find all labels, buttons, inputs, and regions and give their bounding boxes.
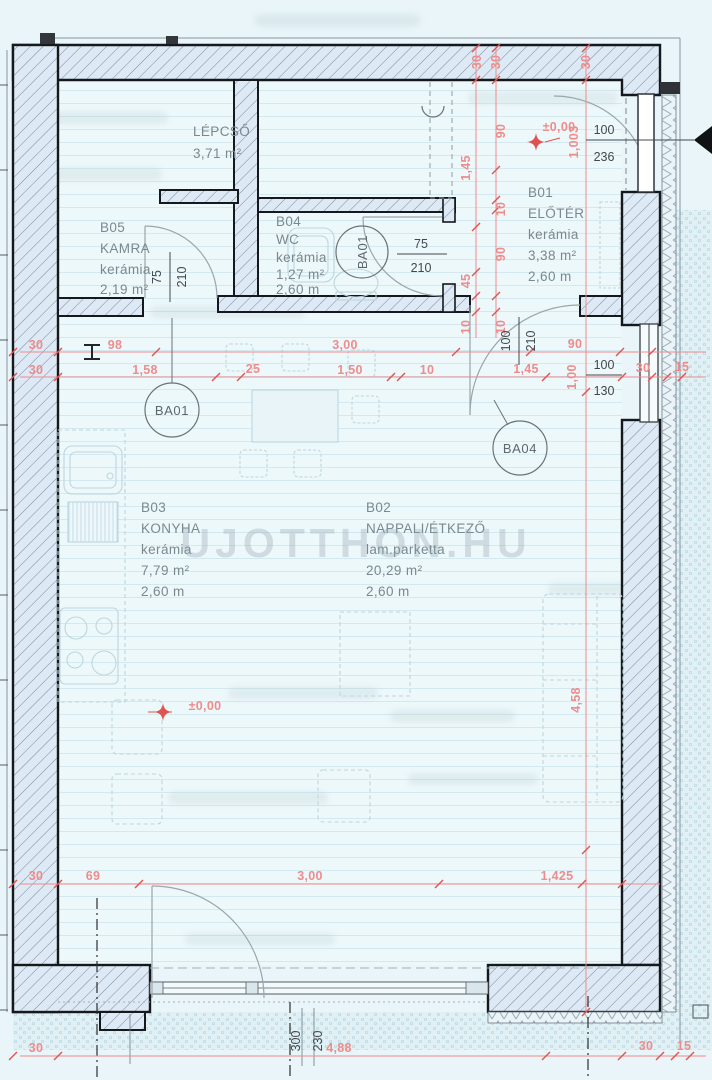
dim-label: 1,00 [565, 364, 579, 390]
terrace-door-mullion [246, 982, 258, 994]
wall-step-bottom-left [100, 1012, 145, 1030]
wall-wc-jamb-bottom [443, 284, 455, 312]
dim-label: 30 [579, 55, 593, 70]
tag-label: BA01 [155, 403, 189, 418]
room-name: ELŐTÉR [528, 206, 584, 221]
kamra-door-height: 210 [175, 267, 189, 288]
room-code: B03 [141, 500, 166, 515]
dim-label: 1,50 [337, 363, 363, 377]
room-code: B01 [528, 185, 553, 200]
dim-label: 15 [675, 360, 690, 374]
wall-wc-bottom [218, 296, 470, 312]
dim-label: 30 [29, 869, 44, 883]
dim-label: 30 [29, 338, 44, 352]
dim-label: 90 [568, 337, 583, 351]
wall-lepcso-kamra [160, 190, 238, 203]
room-code: B05 [100, 220, 125, 235]
window-height: 130 [594, 384, 615, 398]
dim-label: 90 [494, 124, 508, 139]
wall-left [13, 45, 58, 1012]
room-area: 3,38 m² [528, 248, 577, 263]
living-door-height: 210 [524, 331, 538, 352]
terrace-door-width: 300 [289, 1031, 303, 1052]
dim-label: 1,45 [459, 155, 473, 181]
wall-bottom-right [488, 965, 660, 1012]
wall-wc-top [258, 198, 455, 212]
dim-label: 3,00 [332, 338, 358, 352]
room-area: 3,71 m² [193, 146, 242, 161]
window-width: 100 [594, 358, 615, 372]
kamra-door-width: 75 [150, 270, 164, 284]
room-floor: kerámia [100, 262, 151, 277]
elevation-value: ±0,00 [189, 699, 222, 713]
block-top [166, 36, 178, 44]
dim-label: 30 [29, 363, 44, 377]
dim-label: 4,58 [569, 687, 583, 713]
terrace-door-height: 230 [311, 1031, 325, 1052]
dim-label: 10 [494, 202, 508, 217]
dim-label: 1,425 [541, 869, 574, 883]
entry-door-height: 236 [594, 150, 615, 164]
tag-label: BA04 [503, 441, 537, 456]
wall-right-lower [622, 420, 660, 965]
wc-door-width: 75 [414, 237, 428, 251]
room-height: 2,60 m [141, 584, 185, 599]
insulation-right [662, 95, 676, 1012]
floor-plan-page: 30 30 30 1,45 45 10 90 10 90 10 30 98 3,… [0, 0, 712, 1080]
floor-plan-drawing: 30 30 30 1,45 45 10 90 10 90 10 30 98 3,… [0, 0, 712, 1080]
room-height: 2,60 m [528, 269, 572, 284]
dim-label: 90 [494, 247, 508, 262]
wc-door-height: 210 [411, 261, 432, 275]
insulation-bottom [488, 1012, 662, 1023]
dim-label: 1,58 [132, 363, 158, 377]
sink-drainer [68, 502, 118, 542]
room-floor: kerámia [528, 227, 579, 242]
wall-kamra-bottom [58, 298, 143, 316]
dim-label: 25 [246, 362, 261, 376]
dim-label: 45 [459, 274, 473, 289]
dim-label: 4,88 [326, 1041, 352, 1055]
dim-label: 1,45 [513, 362, 539, 376]
wall-bottom-left [13, 965, 150, 1012]
tag-label: BA01 [355, 235, 370, 269]
dim-label: 30 [636, 361, 651, 375]
dim-label: 69 [86, 869, 101, 883]
terrace-door-mullion [466, 982, 488, 994]
entry-door-leaf [638, 94, 654, 192]
corner-block-top-right [660, 82, 680, 94]
watermark-text: UJOTTHON.HU [180, 520, 531, 566]
dim-label: 30 [639, 1039, 654, 1053]
dim-label: 10 [459, 320, 473, 335]
dim-label: 98 [108, 338, 123, 352]
corner-block-top-left [40, 33, 55, 44]
dim-label: 30 [29, 1041, 44, 1055]
dining-table [252, 390, 338, 442]
room-code: B02 [366, 500, 391, 515]
room-floor: kerámia [276, 250, 327, 265]
dim-label: 30 [470, 55, 484, 70]
dim-label: 15 [677, 1039, 692, 1053]
room-height: 2,60 m [276, 282, 320, 297]
room-name: KAMRA [100, 241, 150, 256]
dim-label: 10 [420, 363, 435, 377]
dim-label: 30 [489, 55, 503, 70]
room-area: 2,19 m² [100, 282, 149, 297]
wall-wc-jamb-top [443, 198, 455, 222]
dim-label: 3,00 [297, 869, 323, 883]
room-area: 1,27 m² [276, 267, 325, 282]
room-height: 2,60 m [366, 584, 410, 599]
living-door-width: 100 [499, 331, 513, 352]
wall-right-upper [622, 192, 660, 325]
entry-door-width: 100 [594, 123, 615, 137]
parapet-value: 1,003 [567, 126, 581, 159]
room-code: B04 [276, 214, 301, 229]
room-name: WC [276, 232, 299, 247]
room-name: LÉPCSŐ [193, 124, 250, 139]
